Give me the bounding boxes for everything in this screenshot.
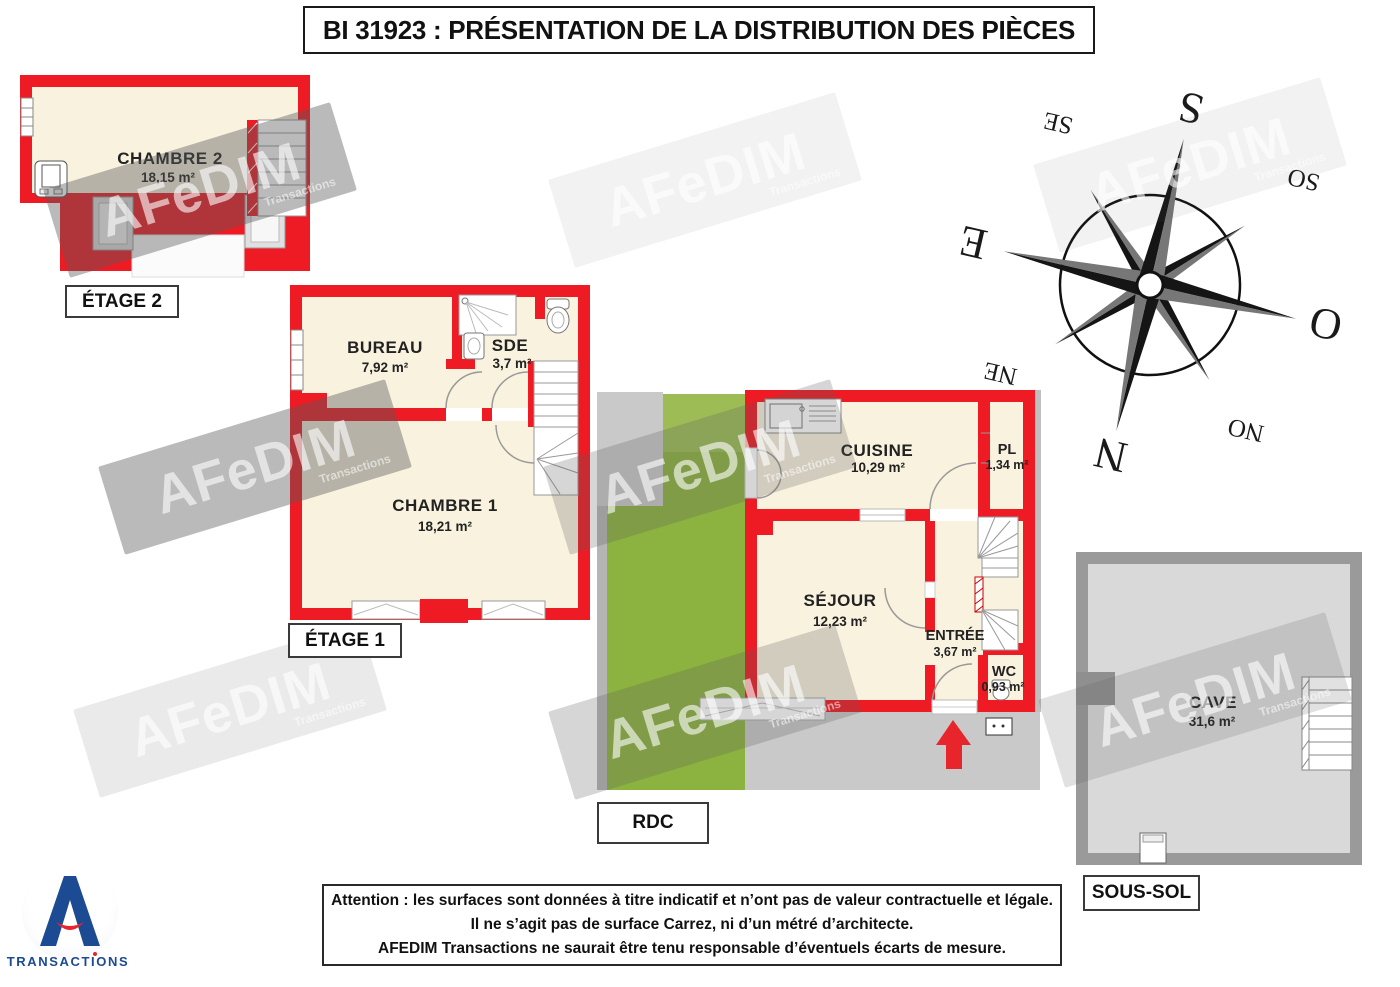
soussol-stairs-icon xyxy=(1302,677,1352,770)
kitchen-sink-icon xyxy=(765,399,841,433)
etage1-window-icon xyxy=(291,330,303,390)
compass-label-no: NO xyxy=(1225,413,1266,447)
sink-icon xyxy=(464,333,484,359)
page-title-box: BI 31923 : PRÉSENTATION DE LA DISTRIBUTI… xyxy=(303,6,1095,54)
compass-label-n: N xyxy=(1090,428,1132,483)
disclaimer-line2: Il ne s’agit pas de surface Carrez, ni d… xyxy=(471,913,914,937)
room-label-cuisine: CUISINE xyxy=(841,441,913,460)
room-area-chambre1: 18,21 m² xyxy=(418,519,473,534)
room-label-bureau: BUREAU xyxy=(347,338,423,357)
compass-rose-icon: N S E O NE SE SO NO xyxy=(940,75,1360,495)
room-area-wc: 0,93 m² xyxy=(981,680,1024,694)
room-area-chambre2: 18,15 m² xyxy=(141,170,196,185)
room-label-sde: SDE xyxy=(492,336,528,355)
floorplan-etage2: CHAMBRE 2 18,15 m² xyxy=(18,73,314,285)
compass-label-e: E xyxy=(954,216,991,270)
disclaimer-line3: AFEDIM Transactions ne saurait être tenu… xyxy=(378,937,1006,961)
floor-label-soussol: SOUS-SOL xyxy=(1083,875,1200,911)
etage1-stairs-icon xyxy=(534,361,578,495)
boiler-icon xyxy=(1140,833,1166,863)
compass-label-ne: NE xyxy=(981,356,1020,390)
shower-icon xyxy=(459,295,516,335)
etage2-window-icon xyxy=(21,98,33,136)
toilet-icon xyxy=(547,299,569,333)
meter-box-icon xyxy=(986,718,1012,735)
room-label-chambre2: CHAMBRE 2 xyxy=(117,149,223,168)
logo-wordmark: TRANSACTIONS xyxy=(6,954,130,969)
compass-label-s: S xyxy=(1173,82,1208,135)
compass-label-se: SE xyxy=(1041,106,1076,139)
room-label-sejour: SÉJOUR xyxy=(804,591,877,610)
etage2-fixture-icon xyxy=(35,161,67,197)
floor-label-rdc: RDC xyxy=(597,802,709,844)
disclaimer-line1: Attention : les surfaces sont données à … xyxy=(331,889,1053,913)
afedim-watermark: AFeDIM Transactions xyxy=(548,92,862,268)
room-area-cave: 31,6 m² xyxy=(1189,714,1236,729)
room-area-sejour: 12,23 m² xyxy=(813,614,868,629)
room-label-cave: CAVE xyxy=(1189,693,1237,712)
etage2-stairs-icon xyxy=(247,120,306,216)
etage1-bottom-windows xyxy=(352,599,545,623)
room-area-entree: 3,67 m² xyxy=(933,645,976,659)
disclaimer-box: Attention : les surfaces sont données à … xyxy=(322,884,1062,966)
page-title: BI 31923 : PRÉSENTATION DE LA DISTRIBUTI… xyxy=(323,15,1075,46)
room-area-sde: 3,7 m² xyxy=(492,356,532,371)
room-label-entree: ENTRÉE xyxy=(926,627,985,644)
floor-label-etage1: ÉTAGE 1 xyxy=(288,623,402,658)
logo-a-icon xyxy=(20,868,120,952)
floorplan-etage1: BUREAU 7,92 m² SDE 3,7 m² CHAMBRE 1 18,2… xyxy=(288,283,594,623)
floor-label-etage2: ÉTAGE 2 xyxy=(65,285,179,318)
floorplan-soussol: CAVE 31,6 m² xyxy=(1074,550,1366,870)
room-area-bureau: 7,92 m² xyxy=(362,360,409,375)
compass-label-o: O xyxy=(1305,297,1347,352)
room-label-chambre1: CHAMBRE 1 xyxy=(392,496,498,515)
room-area-cuisine: 10,29 m² xyxy=(851,460,906,475)
sejour-window xyxy=(700,698,825,720)
floorplan-page: BI 31923 : PRÉSENTATION DE LA DISTRIBUTI… xyxy=(0,0,1400,987)
room-label-wc: WC xyxy=(992,664,1017,680)
compass-label-so: SO xyxy=(1285,163,1322,196)
afedim-transactions-logo: TRANSACTIONS xyxy=(6,864,130,976)
logo-i-dot xyxy=(93,952,97,956)
